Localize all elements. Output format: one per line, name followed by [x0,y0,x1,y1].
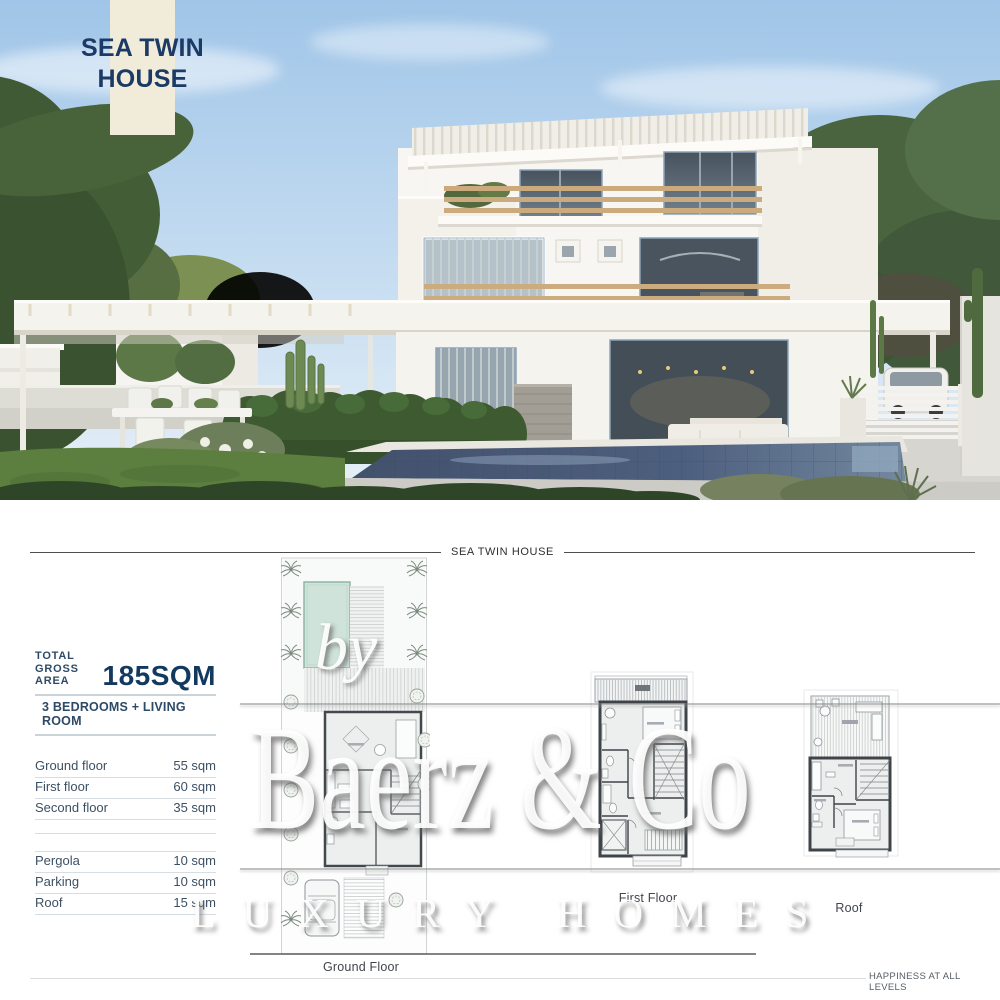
table-row: Ground floor 55 sqm [35,754,216,778]
table-row: Pergola 10 sqm [35,852,216,873]
row-label: Parking [35,874,79,889]
table-row: Roof 15 sqm [35,894,216,915]
project-title-line1: SEA TWIN [63,33,223,64]
row-label: Second floor [35,800,108,815]
header-rule-right [564,552,975,553]
row-value: 35 sqm [173,800,216,815]
total-area-value: 185SQM [103,663,217,688]
project-badge: SEA TWIN HOUSE [110,0,175,135]
area-table: Ground floor 55 sqm First floor 60 sqm S… [35,754,216,915]
first-floor-label: First Floor [619,891,677,905]
row-label: First floor [35,779,89,794]
project-title: SEA TWIN HOUSE [63,33,223,95]
total-area-label: TOTAL GROSS AREA [35,650,90,688]
bedrooms-subtitle: 3 BEDROOMS + LIVING ROOM [35,696,216,736]
header-rule-left [30,552,441,553]
row-value: 15 sqm [173,895,216,910]
table-row-spacer [35,820,216,834]
footer-rule [30,978,866,979]
watermark-brand: Baerz & Co [150,712,850,844]
table-row: First floor 60 sqm [35,778,216,799]
site-boundary-line [250,953,756,955]
area-specs-panel: TOTAL GROSS AREA 185SQM 3 BEDROOMS + LIV… [35,650,216,915]
first-floor-plan [583,670,698,885]
table-row: Second floor 35 sqm [35,799,216,820]
roof-plan [798,688,903,863]
table-row: Parking 10 sqm [35,873,216,894]
footer-tagline: HAPPINESS AT ALL LEVELS [869,971,1000,993]
row-value: 60 sqm [173,779,216,794]
plans-header: SEA TWIN HOUSE [30,546,975,558]
roof-label: Roof [835,901,862,915]
ground-floor-plan [278,556,430,956]
table-row-spacer [35,834,216,852]
brochure-page: SEA TWIN HOUSE SEA TWIN HOUSE TOTAL GROS… [0,0,1000,1000]
plans-title: SEA TWIN HOUSE [451,546,554,558]
row-value: 10 sqm [173,874,216,889]
row-value: 10 sqm [173,853,216,868]
row-value: 55 sqm [173,758,216,773]
total-area-header: TOTAL GROSS AREA 185SQM [35,650,216,696]
row-label: Roof [35,895,62,910]
project-title-line2: HOUSE [63,64,223,95]
row-label: Pergola [35,853,80,868]
row-label: Ground floor [35,758,107,773]
ground-floor-label: Ground Floor [323,960,399,974]
